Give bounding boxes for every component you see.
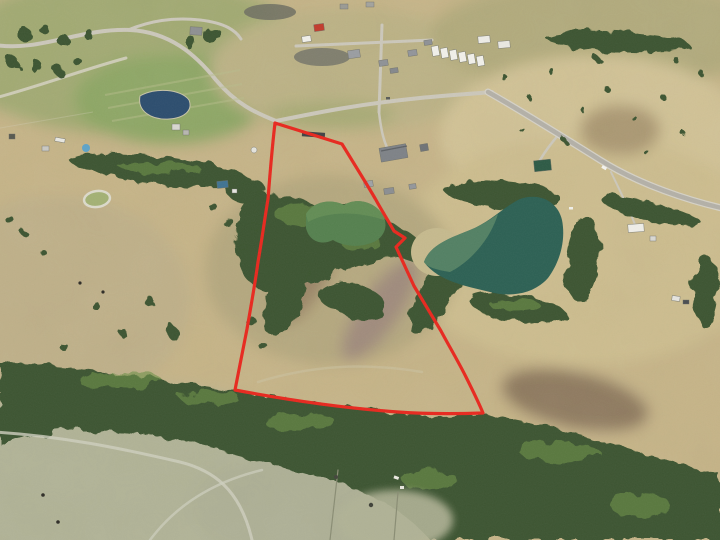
aerial-photo-canvas bbox=[0, 0, 720, 540]
aerial-photo bbox=[0, 0, 720, 540]
photo-grain-overlay bbox=[0, 0, 720, 540]
